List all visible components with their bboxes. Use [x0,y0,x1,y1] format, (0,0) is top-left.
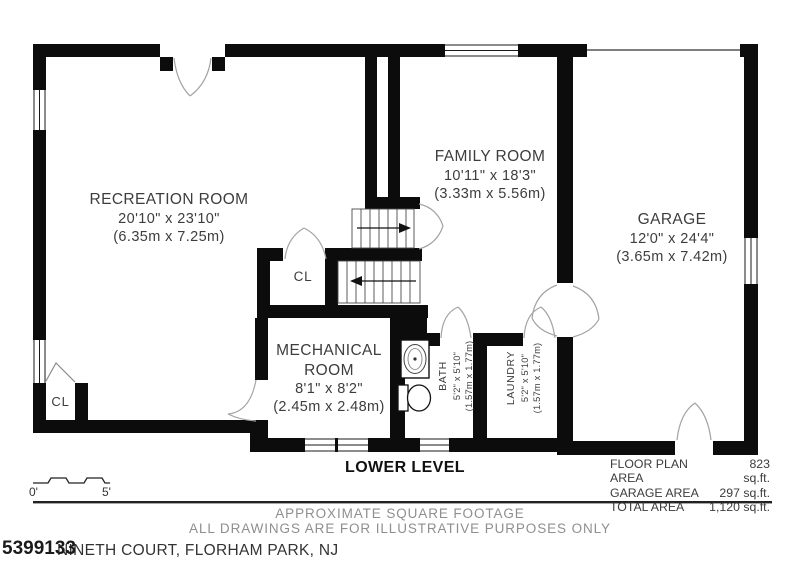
room-metric: (1.57m x 1.77m) [463,316,476,436]
area-value: 823 sq.ft. [721,457,770,486]
room-label-family: FAMILY ROOM 10'11" x 18'3" (3.33m x 5.56… [400,147,580,203]
room-metric: (2.45m x 2.48m) [258,398,400,416]
area-label: GARAGE AREA [610,486,699,500]
bath-fixtures [398,340,431,411]
room-dims: 20'10" x 23'10" [40,210,298,228]
room-label-mechanical: MECHANICAL ROOM 8'1" x 8'2" (2.45m x 2.4… [258,341,400,417]
page-title: LOWER LEVEL [310,459,500,477]
listing-id-watermark: 5399133 [2,538,76,560]
closet-label-left: CL [45,394,76,409]
room-metric: (1.57m x 1.77m) [531,318,544,438]
scale-end-label: 5' [102,485,111,499]
area-label: FLOOR PLAN AREA [610,457,721,486]
room-name: GARAGE [582,210,762,230]
room-name: BATH [436,316,450,436]
room-name: LAUNDRY [504,318,518,438]
room-label-recreation: RECREATION ROOM 20'10" x 23'10" (6.35m x… [40,190,298,246]
disclaimer-line-2: ALL DRAWINGS ARE FOR ILLUSTRATIVE PURPOS… [0,521,800,536]
scale-bar [33,478,110,483]
room-metric: (3.33m x 5.56m) [400,185,580,203]
room-label-laundry: LAUNDRY 5'2" x 5'10" (1.57m x 1.77m) [503,318,545,438]
sink-icon [401,340,429,378]
table-row: FLOOR PLAN AREA 823 sq.ft. [610,457,770,486]
room-metric: (6.35m x 7.25m) [40,228,298,246]
room-dims: 12'0" x 24'4" [582,230,762,248]
room-name: FAMILY ROOM [400,147,580,167]
disclaimer-line-1: APPROXIMATE SQUARE FOOTAGE [0,506,800,521]
table-row: GARAGE AREA 297 sq.ft. [610,486,770,500]
room-metric: (3.65m x 7.42m) [582,248,762,266]
room-name: RECREATION ROOM [40,190,298,210]
room-label-garage: GARAGE 12'0" x 24'4" (3.65m x 7.42m) [582,210,762,266]
room-dims: 10'11" x 18'3" [400,167,580,185]
room-dims: 5'2" x 5'10" [519,318,532,438]
room-dims: 5'2" x 5'10" [451,316,464,436]
area-value: 297 sq.ft. [719,486,770,500]
floor-plan-canvas: RECREATION ROOM 20'10" x 23'10" (6.35m x… [0,0,800,565]
property-address: NINETH COURT, FLORHAM PARK, NJ [57,542,338,560]
closet-label-mid: CL [284,269,322,284]
room-dims: 8'1" x 8'2" [258,380,400,398]
scale-start-label: 0' [29,485,38,499]
toilet-icon [398,385,431,411]
room-label-bath: BATH 5'2" x 5'10" (1.57m x 1.77m) [435,316,477,436]
room-name: MECHANICAL ROOM [258,341,400,380]
